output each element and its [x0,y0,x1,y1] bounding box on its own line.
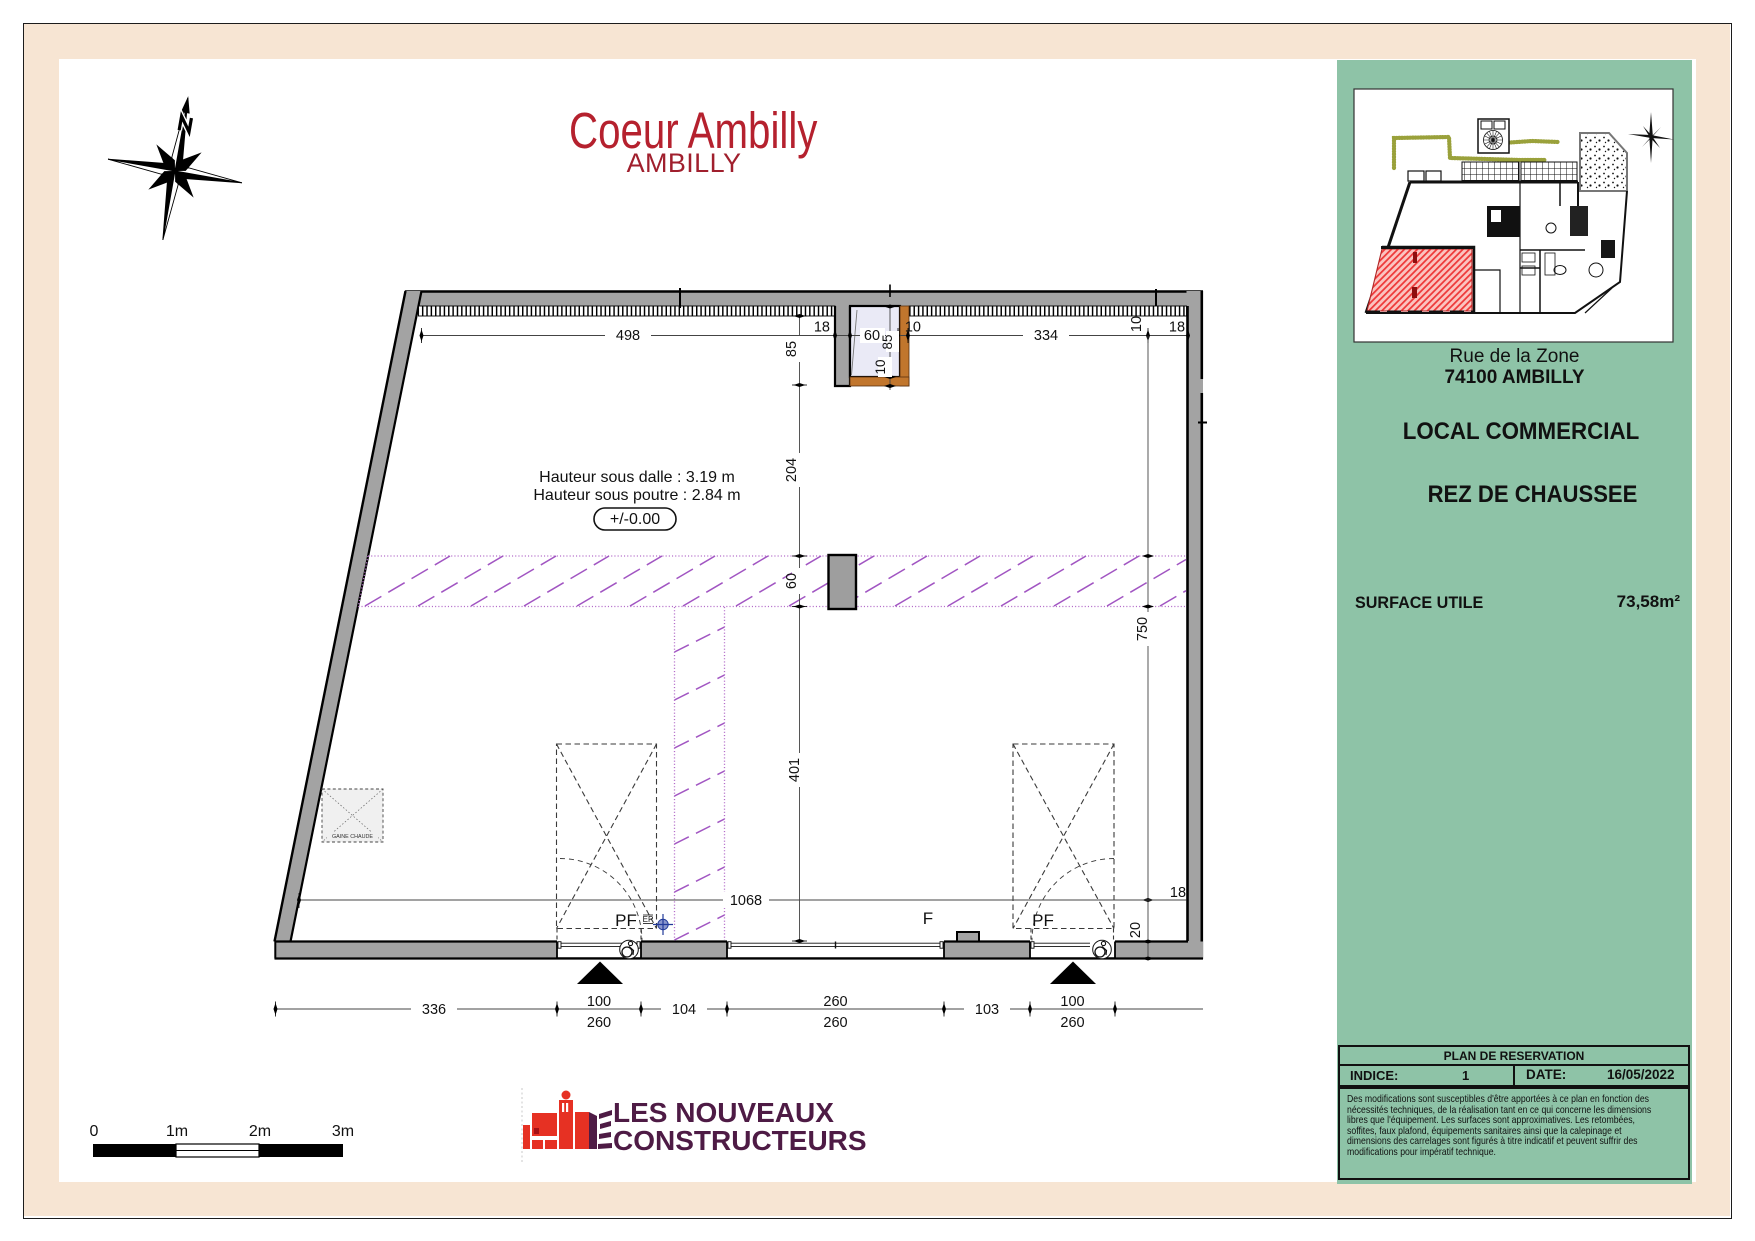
svg-text:498: 498 [616,328,640,344]
svg-text:10: 10 [873,359,888,374]
svg-text:PF: PF [615,911,637,930]
svg-text:85: 85 [784,341,800,357]
svg-text:20: 20 [1128,922,1144,938]
svg-text:60: 60 [864,328,880,344]
svg-text:85: 85 [880,334,895,349]
svg-text:750: 750 [1135,617,1151,641]
svg-text:AMBILLY: AMBILLY [627,148,742,178]
svg-text:260: 260 [587,1015,611,1031]
svg-text:100: 100 [1060,994,1084,1010]
svg-text:CONSTRUCTEURS: CONSTRUCTEURS [613,1125,867,1156]
svg-text:103: 103 [975,1002,999,1018]
svg-text:104: 104 [672,1002,696,1018]
svg-text:Hauteur sous dalle : 3.19 m: Hauteur sous dalle : 3.19 m [539,469,735,486]
svg-text:60: 60 [784,573,800,589]
svg-text:EP: EP [643,915,654,924]
svg-text:3m: 3m [332,1123,354,1140]
svg-text:100: 100 [587,994,611,1010]
svg-text:+/-0.00: +/-0.00 [610,511,660,528]
svg-text:334: 334 [1034,328,1058,344]
svg-text:1m: 1m [166,1123,188,1140]
svg-text:260: 260 [823,1015,847,1031]
svg-text:1068: 1068 [730,893,762,909]
svg-text:F: F [923,909,933,928]
svg-text:GAINE CHAUDE: GAINE CHAUDE [332,834,373,840]
svg-text:LES NOUVEAUX: LES NOUVEAUX [613,1097,834,1128]
svg-text:336: 336 [422,1002,446,1018]
svg-text:10: 10 [905,320,921,336]
svg-text:18: 18 [1169,320,1185,336]
svg-text:10: 10 [1129,316,1145,332]
svg-text:401: 401 [787,758,803,782]
svg-text:18: 18 [1170,885,1186,901]
svg-text:2m: 2m [249,1123,271,1140]
svg-text:PF: PF [1032,911,1054,930]
svg-text:260: 260 [1060,1015,1084,1031]
svg-text:260: 260 [823,994,847,1010]
svg-text:Hauteur sous poutre : 2.84 m: Hauteur sous poutre : 2.84 m [533,487,740,504]
svg-text:204: 204 [784,458,800,482]
svg-text:18: 18 [814,320,830,336]
svg-text:0: 0 [90,1123,99,1140]
